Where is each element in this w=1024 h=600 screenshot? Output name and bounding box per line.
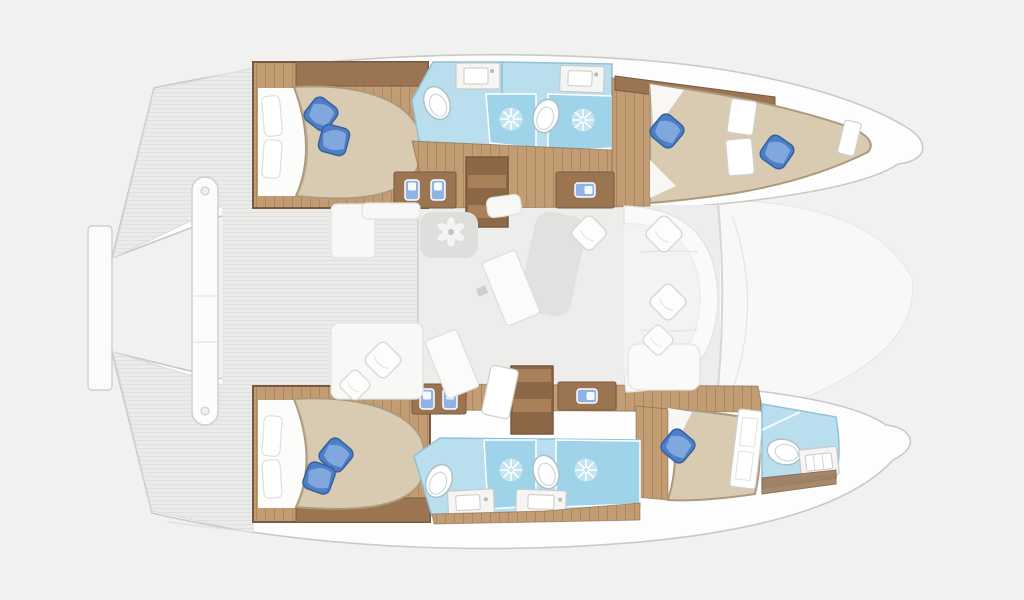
upper-sideboard-fwd (556, 172, 614, 208)
transom-beam (192, 177, 218, 425)
lower-bow-bathroom (762, 404, 839, 494)
shower-jet-icon (500, 459, 523, 482)
beam-screw (201, 407, 209, 415)
white-pillow (262, 459, 283, 498)
lower-aft-cabin (253, 386, 430, 522)
stair-tread (513, 369, 551, 382)
white-pillow (261, 95, 282, 136)
sink-unit-icon (431, 180, 445, 200)
sink-unit-icon (575, 183, 595, 197)
vanity-sink (456, 63, 500, 89)
shower-jet-icon (575, 459, 598, 482)
sink-basin (456, 495, 481, 511)
swim-platform (88, 226, 112, 390)
wardrobe (296, 62, 428, 86)
lower-forward-corridor (636, 406, 668, 500)
shower-jet-icon (500, 108, 523, 131)
sink-basin (464, 68, 488, 84)
stair-tread (468, 175, 506, 188)
stair-tread (513, 384, 551, 397)
sink-basin (805, 453, 833, 472)
sink-unit-icon (577, 389, 597, 403)
berth-step (725, 138, 754, 176)
lower-bathrooms (414, 438, 640, 524)
vanity-sink (560, 65, 605, 93)
floor-plan-canvas (0, 0, 1024, 600)
stair-landing (486, 194, 522, 219)
stair-tread (513, 414, 551, 427)
catamaran-floor-plan (0, 0, 1024, 600)
upper-forward-corridor (612, 78, 650, 207)
cockpit-table (362, 203, 420, 219)
sink-unit-icon (405, 180, 419, 200)
white-pillow (262, 415, 283, 456)
stair-tread (513, 399, 551, 412)
sink-basin (568, 71, 593, 87)
stair-tread (468, 160, 506, 173)
beam-screw (201, 187, 209, 195)
faucet (490, 69, 494, 73)
lower-forward-cabin (658, 408, 764, 500)
berth-step (727, 98, 757, 135)
white-pillow (262, 139, 283, 178)
upper-mid-bathroom (486, 62, 612, 154)
shower-stall (556, 440, 640, 507)
shower-jet-icon (572, 109, 595, 132)
sink-basin (528, 495, 554, 510)
aft-beam (192, 177, 218, 425)
lower-sideboard-fwd (558, 382, 616, 410)
